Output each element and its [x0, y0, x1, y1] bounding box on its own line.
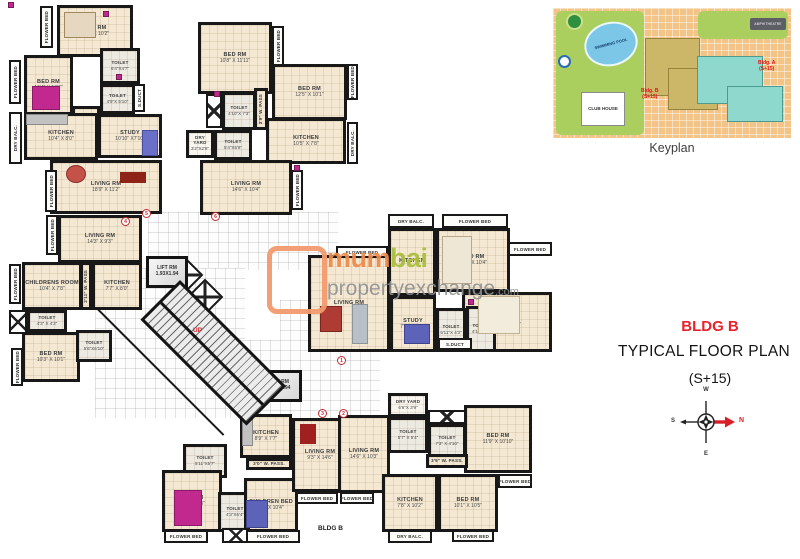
room-kitchen: KITCHEN7'8" X 10'2"	[382, 474, 438, 532]
compass-north: N	[739, 417, 744, 424]
furniture-kitchen-counter	[26, 114, 68, 125]
furniture-tv-unit	[120, 172, 146, 183]
door-number: 6	[211, 212, 220, 221]
room-toilet: TOILET5'4"X5'9"	[214, 130, 252, 160]
flower-bed-strip: FLOWER BED	[46, 215, 58, 255]
room-bedroom: BED RM12'5" X 10'1"	[272, 64, 347, 120]
door-number: 5	[142, 209, 151, 218]
flower-bed-strip: FLOWER BED	[347, 64, 358, 100]
room-bedroom: BED RM10'3" X 10'1"	[22, 332, 80, 382]
flower-bed-strip: FLOWER BED	[452, 530, 494, 542]
flower-bed-strip: FLOWER BED	[246, 530, 300, 543]
dry-balcony-strip: DRY BALC.	[388, 530, 432, 543]
keyplan-caption: Keyplan	[553, 141, 791, 155]
plan-footer-label: BLDG B	[318, 525, 343, 532]
room-bedroom: BED RM10'1" X 10'5"	[438, 474, 498, 532]
watermark-brand: mumbai	[327, 243, 428, 274]
compass-rose: W S E N	[672, 388, 740, 456]
flower-pot	[8, 2, 14, 8]
flower-bed-strip: FLOWER BED	[296, 492, 338, 504]
watermark-domain: propertyexchange.com	[327, 277, 519, 301]
room-kitchen: KITCHEN7'7" X 8'0"	[92, 262, 142, 310]
room-dry-yard: DRY YARD3'2"X2'9"	[186, 130, 214, 158]
flower-bed-strip: FLOWER BED	[442, 214, 508, 228]
furniture-rug	[246, 500, 268, 528]
furniture-bed	[174, 490, 202, 526]
duct-hatch	[206, 94, 222, 128]
building-title: BLDG B	[620, 318, 800, 335]
duct-hatch	[428, 410, 466, 424]
keyplan: AMPHITHEATRE SWIMMING POOL CLUB HOUSE Bl…	[553, 8, 791, 138]
service-duct: S.DUCT	[133, 84, 145, 112]
room-kitchen: KITCHEN10'5" X 7'8"	[266, 118, 346, 164]
flower-bed-strip: FLOWER BED	[45, 170, 57, 212]
room-bedroom: BED RM11'9" X 10'10"	[464, 405, 532, 473]
furniture-sofa	[352, 304, 368, 344]
flower-pot	[116, 74, 122, 80]
keyplan-bldg-a-footprint	[727, 86, 783, 122]
furniture-rug	[142, 130, 158, 156]
floor-plan-page: BED RM13'2" X 10'2" BED RM10'4" X 10'7" …	[0, 0, 800, 559]
keyplan-planter	[566, 13, 583, 30]
door-number: 2	[339, 409, 348, 418]
flower-bed-strip: FLOWER BED	[291, 170, 303, 210]
room-living: LIVING RM14'6" X 10'4"	[200, 160, 292, 215]
furniture-rug	[404, 324, 430, 344]
compass-south: S	[671, 418, 675, 424]
room-passage: 3'9" W. PASS.	[426, 454, 468, 468]
room-toilet: TOILET4'3" X 4'3"	[27, 310, 67, 332]
keyplan-bldg-b-label: Bldg. B(S+15)	[641, 88, 659, 100]
keyplan-club-house: CLUB HOUSE	[581, 92, 625, 126]
flower-pot	[294, 165, 300, 171]
compass-east: E	[672, 451, 740, 457]
flower-bed-strip: FLOWER BED	[340, 492, 374, 504]
service-duct: S.DUCT	[438, 338, 472, 350]
compass-icon	[672, 388, 740, 456]
room-toilet: TOILET7'3" X 4'10"	[428, 424, 466, 458]
door-number: 4	[121, 217, 130, 226]
furniture-bed	[64, 12, 96, 38]
keyplan-bldg-a-label: Bldg. A(S+15)	[758, 60, 775, 72]
floors-subtitle: (S+15)	[620, 370, 800, 386]
door-number: 1	[337, 356, 346, 365]
flower-bed-strip: FLOWER BED	[40, 6, 53, 48]
dry-balcony-strip: DRY BALC.	[388, 214, 434, 228]
compass-west: W	[672, 387, 740, 393]
flower-pot	[103, 11, 109, 17]
stairs-up-label: UP	[193, 327, 202, 334]
flower-pot	[214, 91, 220, 97]
room-toilet: TOILET4'9"X 5'10"	[100, 84, 135, 114]
flower-bed-strip: FLOWER BED	[272, 26, 284, 66]
plan-title: TYPICAL FLOOR PLAN	[606, 343, 800, 361]
room-passage: 3'0" W. PASS.	[246, 458, 292, 470]
room-toilet: TOILET5'7" X 5'4"	[388, 417, 428, 453]
flower-bed-strip: FLOWER BED	[164, 530, 208, 543]
furniture-cabinet	[300, 424, 316, 444]
room-dry-yard: DRY YARD6'6"X 3'9"	[388, 393, 428, 417]
furniture-dining-table	[66, 165, 86, 183]
furniture-bed	[478, 296, 520, 334]
duct-hatch	[9, 310, 27, 334]
keyplan-fountain	[558, 55, 571, 68]
keyplan-amphitheatre: AMPHITHEATRE	[750, 18, 786, 30]
flower-bed-strip: FLOWER BED	[508, 242, 552, 256]
door-number: 3	[318, 409, 327, 418]
room-passage: 2'11" W. PASS	[80, 262, 92, 310]
dry-balcony-strip: DRY BALC.	[347, 122, 358, 164]
flower-bed-strip: FLOWER BED	[9, 60, 21, 104]
room-bedroom: BED RM10'8" X 11'11"	[198, 22, 272, 94]
flower-bed-strip: FLOWER BED	[9, 264, 21, 304]
flower-bed-strip: FLOWER BED	[498, 474, 532, 488]
watermark-logo	[267, 246, 327, 314]
room-toilet: TOILET4'10"X 7'3"	[222, 92, 256, 130]
flower-bed-strip: FLOWER BED	[11, 348, 23, 386]
dry-balcony-strip: DRY BALC.	[9, 112, 22, 164]
room-toilet: TOILET5'6"X6'10"	[76, 330, 112, 362]
room-childrens: CHILDRENS ROOM10'4" X 7'8"	[22, 262, 82, 310]
furniture-bed	[32, 86, 60, 110]
